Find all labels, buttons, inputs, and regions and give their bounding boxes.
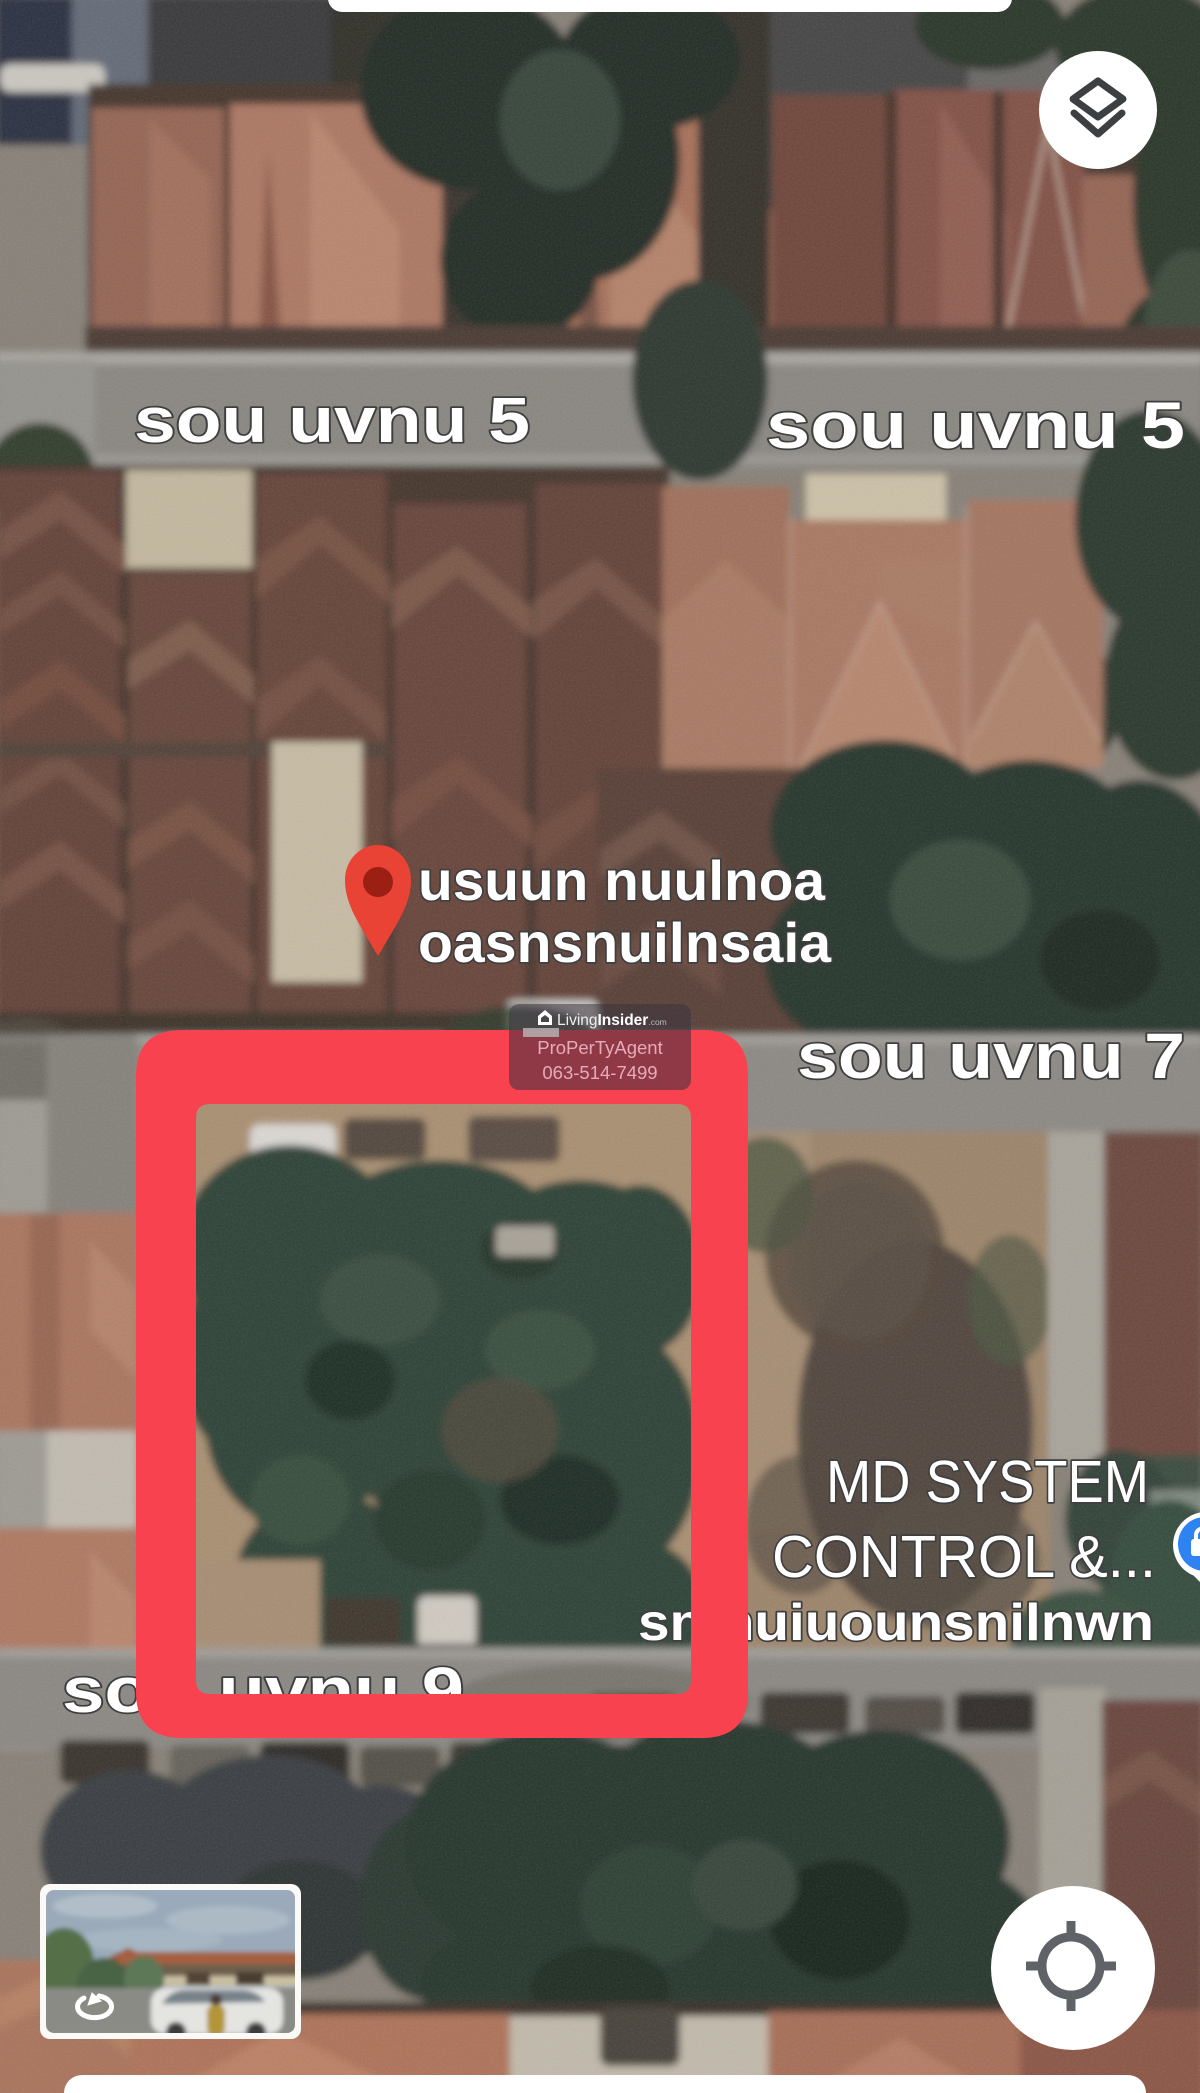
svg-text:sou uvnu 5: sou uvnu 5: [134, 384, 530, 456]
svg-text:usuun nuulnoa: usuun nuulnoa: [418, 849, 826, 912]
svg-text:sou uvnu 7: sou uvnu 7: [797, 1020, 1185, 1092]
svg-text:MD SYSTEM: MD SYSTEM: [826, 1449, 1149, 1515]
svg-text:oasnsnuilnsaia: oasnsnuilnsaia: [418, 911, 832, 974]
svg-text:063-514-7499: 063-514-7499: [542, 1062, 657, 1083]
svg-text:CONTROL &...: CONTROL &...: [772, 1524, 1156, 1590]
svg-text:sou uvnu 5: sou uvnu 5: [766, 388, 1185, 462]
svg-text:ProPerTyAgent: ProPerTyAgent: [537, 1037, 662, 1058]
